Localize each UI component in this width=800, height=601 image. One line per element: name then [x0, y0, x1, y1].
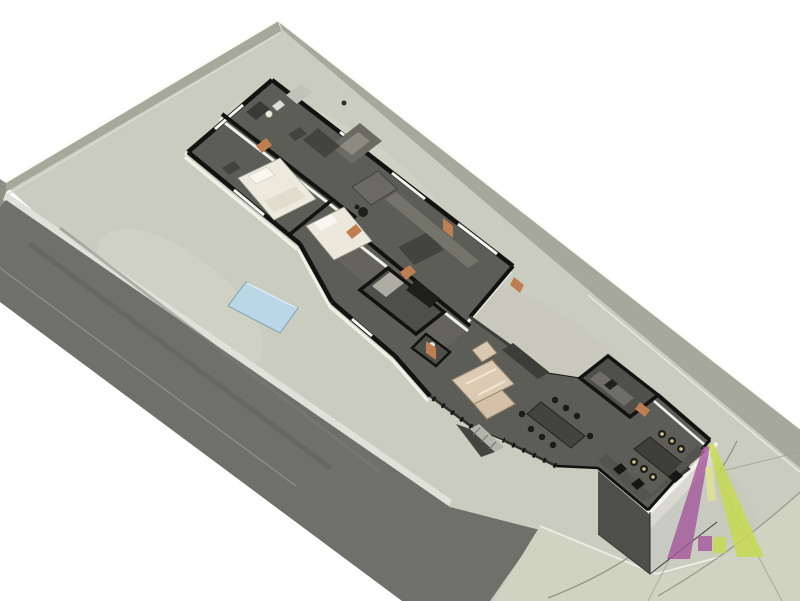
stool-1-seat [660, 432, 664, 436]
office-chair-back [355, 205, 360, 210]
stool-5-seat [642, 467, 646, 471]
floor-lamp [342, 101, 347, 106]
logo-square-green [713, 537, 726, 553]
logo-square-magenta [698, 536, 712, 551]
office-chair [358, 207, 368, 217]
axonometric-scene [0, 0, 800, 601]
stool-6-seat [651, 475, 655, 479]
floor-plan-rendering [0, 0, 800, 601]
dining-chair-1 [552, 397, 558, 403]
stool-4-seat [632, 460, 636, 464]
stool-3-seat [679, 447, 683, 451]
dining-chair-7 [519, 411, 525, 417]
dining-chair-8 [587, 433, 593, 439]
dining-chair-3 [574, 413, 580, 419]
dining-chair-2 [563, 405, 569, 411]
dining-chair-5 [539, 434, 545, 440]
dining-chair-6 [550, 442, 556, 448]
dining-chair-4 [528, 426, 534, 432]
stool-2-seat [670, 439, 674, 443]
